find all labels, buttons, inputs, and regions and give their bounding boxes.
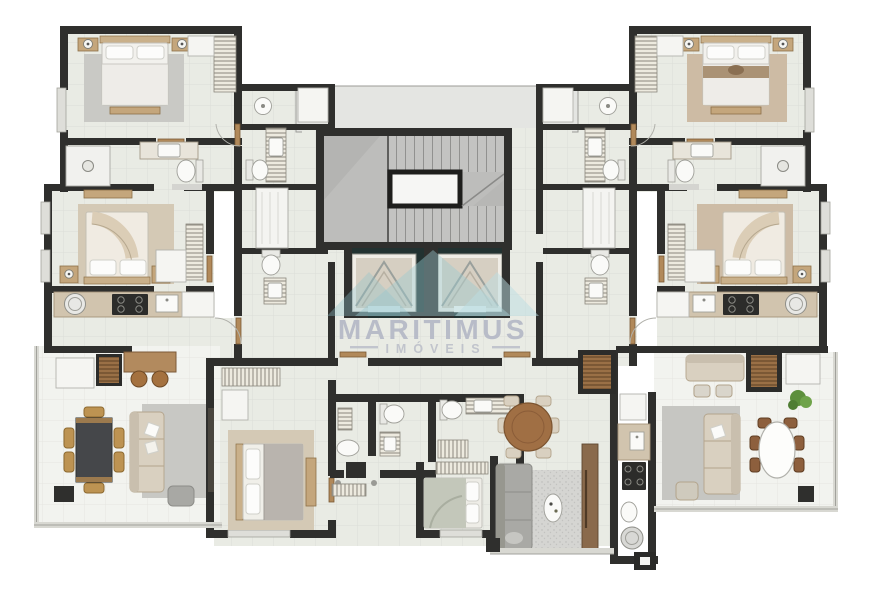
pillow	[90, 260, 116, 275]
window	[57, 88, 66, 132]
toilet	[252, 160, 268, 180]
chair	[536, 396, 551, 406]
pillow	[466, 504, 479, 523]
dresser	[306, 458, 316, 506]
sofa-center	[496, 464, 532, 550]
door-entry	[340, 352, 366, 357]
ottoman	[716, 385, 732, 397]
stairs-upper-flight	[388, 136, 504, 172]
closet-shelf	[222, 390, 248, 420]
pillow	[120, 260, 146, 275]
watermark-title: MARITIMUS	[338, 314, 528, 345]
bed-bench	[110, 107, 160, 114]
sink	[269, 138, 283, 156]
pillow	[505, 532, 523, 544]
bath-mat	[172, 184, 202, 190]
pillow	[145, 441, 158, 454]
window	[41, 202, 50, 234]
dining-right	[750, 418, 804, 478]
cabinet	[182, 292, 214, 317]
sofa-left	[130, 412, 164, 492]
kitchen	[54, 292, 214, 317]
watermark-subtitle: IMÓVEIS	[385, 341, 486, 356]
wardrobe	[436, 462, 488, 474]
chair	[64, 452, 74, 472]
closet-shelf	[188, 36, 214, 56]
sink	[156, 295, 178, 312]
chair	[750, 458, 760, 472]
window	[41, 250, 50, 282]
dining-round	[498, 396, 559, 458]
headboard	[236, 444, 243, 520]
oval-table	[759, 422, 795, 478]
chair	[114, 428, 124, 448]
counter	[786, 354, 820, 384]
linen-closet	[332, 484, 366, 496]
column	[54, 486, 74, 502]
tv-panel	[582, 444, 598, 552]
terrace-rail	[490, 548, 614, 554]
fridge	[620, 394, 646, 420]
shower	[256, 188, 288, 248]
toilet	[262, 255, 280, 275]
sink	[630, 432, 644, 450]
chair	[794, 458, 804, 472]
toilet	[337, 440, 359, 456]
stool	[152, 371, 168, 387]
column	[798, 486, 814, 502]
door	[207, 256, 212, 282]
stove	[112, 294, 148, 315]
ottoman	[676, 482, 698, 500]
grill	[99, 357, 119, 383]
wardrobe	[186, 224, 203, 280]
wardrobe	[214, 36, 236, 92]
washer-icon	[65, 294, 86, 315]
pillow	[106, 46, 133, 59]
window	[228, 530, 290, 537]
duct	[298, 88, 328, 122]
bed-suite-b	[424, 478, 482, 528]
door-knob-icon	[371, 480, 377, 486]
shower-drain-icon	[83, 161, 94, 172]
chair	[64, 428, 74, 448]
sofa-right	[704, 414, 740, 494]
stairs-lower-flight	[388, 206, 504, 242]
island-counter	[124, 352, 176, 372]
vanity	[338, 408, 352, 430]
toilet	[621, 502, 637, 522]
sink	[474, 400, 492, 412]
ottoman	[694, 385, 710, 397]
headboard	[100, 36, 170, 43]
door	[235, 124, 240, 146]
chair	[84, 407, 104, 417]
shower	[438, 440, 468, 458]
sink	[268, 283, 282, 298]
coffee-table	[544, 494, 562, 522]
watermark-dash	[492, 346, 520, 348]
sink	[158, 144, 180, 157]
bed-throw-right	[703, 65, 769, 78]
floor-plan-canvas: MARITIMUS IMÓVEIS	[0, 0, 871, 600]
chair	[504, 396, 519, 406]
round-table	[504, 403, 552, 451]
window	[440, 530, 482, 537]
cabinet	[56, 358, 94, 388]
pillow	[246, 449, 260, 479]
watermark-dash	[350, 346, 378, 348]
grill	[751, 355, 777, 387]
pillow	[466, 482, 479, 501]
shelf	[84, 190, 132, 198]
floor-plan: MARITIMUS IMÓVEIS	[0, 0, 871, 600]
washer-icon	[621, 527, 643, 549]
wardrobe	[222, 368, 280, 386]
floor-technical-hall	[296, 86, 578, 132]
column	[486, 538, 500, 552]
toilet	[442, 401, 462, 419]
toilet	[384, 405, 404, 423]
grill	[583, 355, 611, 389]
tv-panel	[208, 408, 214, 492]
chair	[114, 452, 124, 472]
pouf	[168, 486, 194, 506]
dining-table	[76, 418, 112, 482]
stool	[131, 371, 147, 387]
pillow	[246, 484, 260, 514]
pillow	[137, 46, 164, 59]
stair-void	[390, 172, 460, 206]
desk	[156, 250, 186, 282]
chair	[536, 448, 551, 458]
headboard	[84, 277, 150, 284]
chair	[84, 483, 104, 493]
door-entry	[504, 352, 530, 357]
toilet	[177, 160, 195, 182]
sink	[384, 437, 396, 451]
stove	[622, 462, 646, 490]
